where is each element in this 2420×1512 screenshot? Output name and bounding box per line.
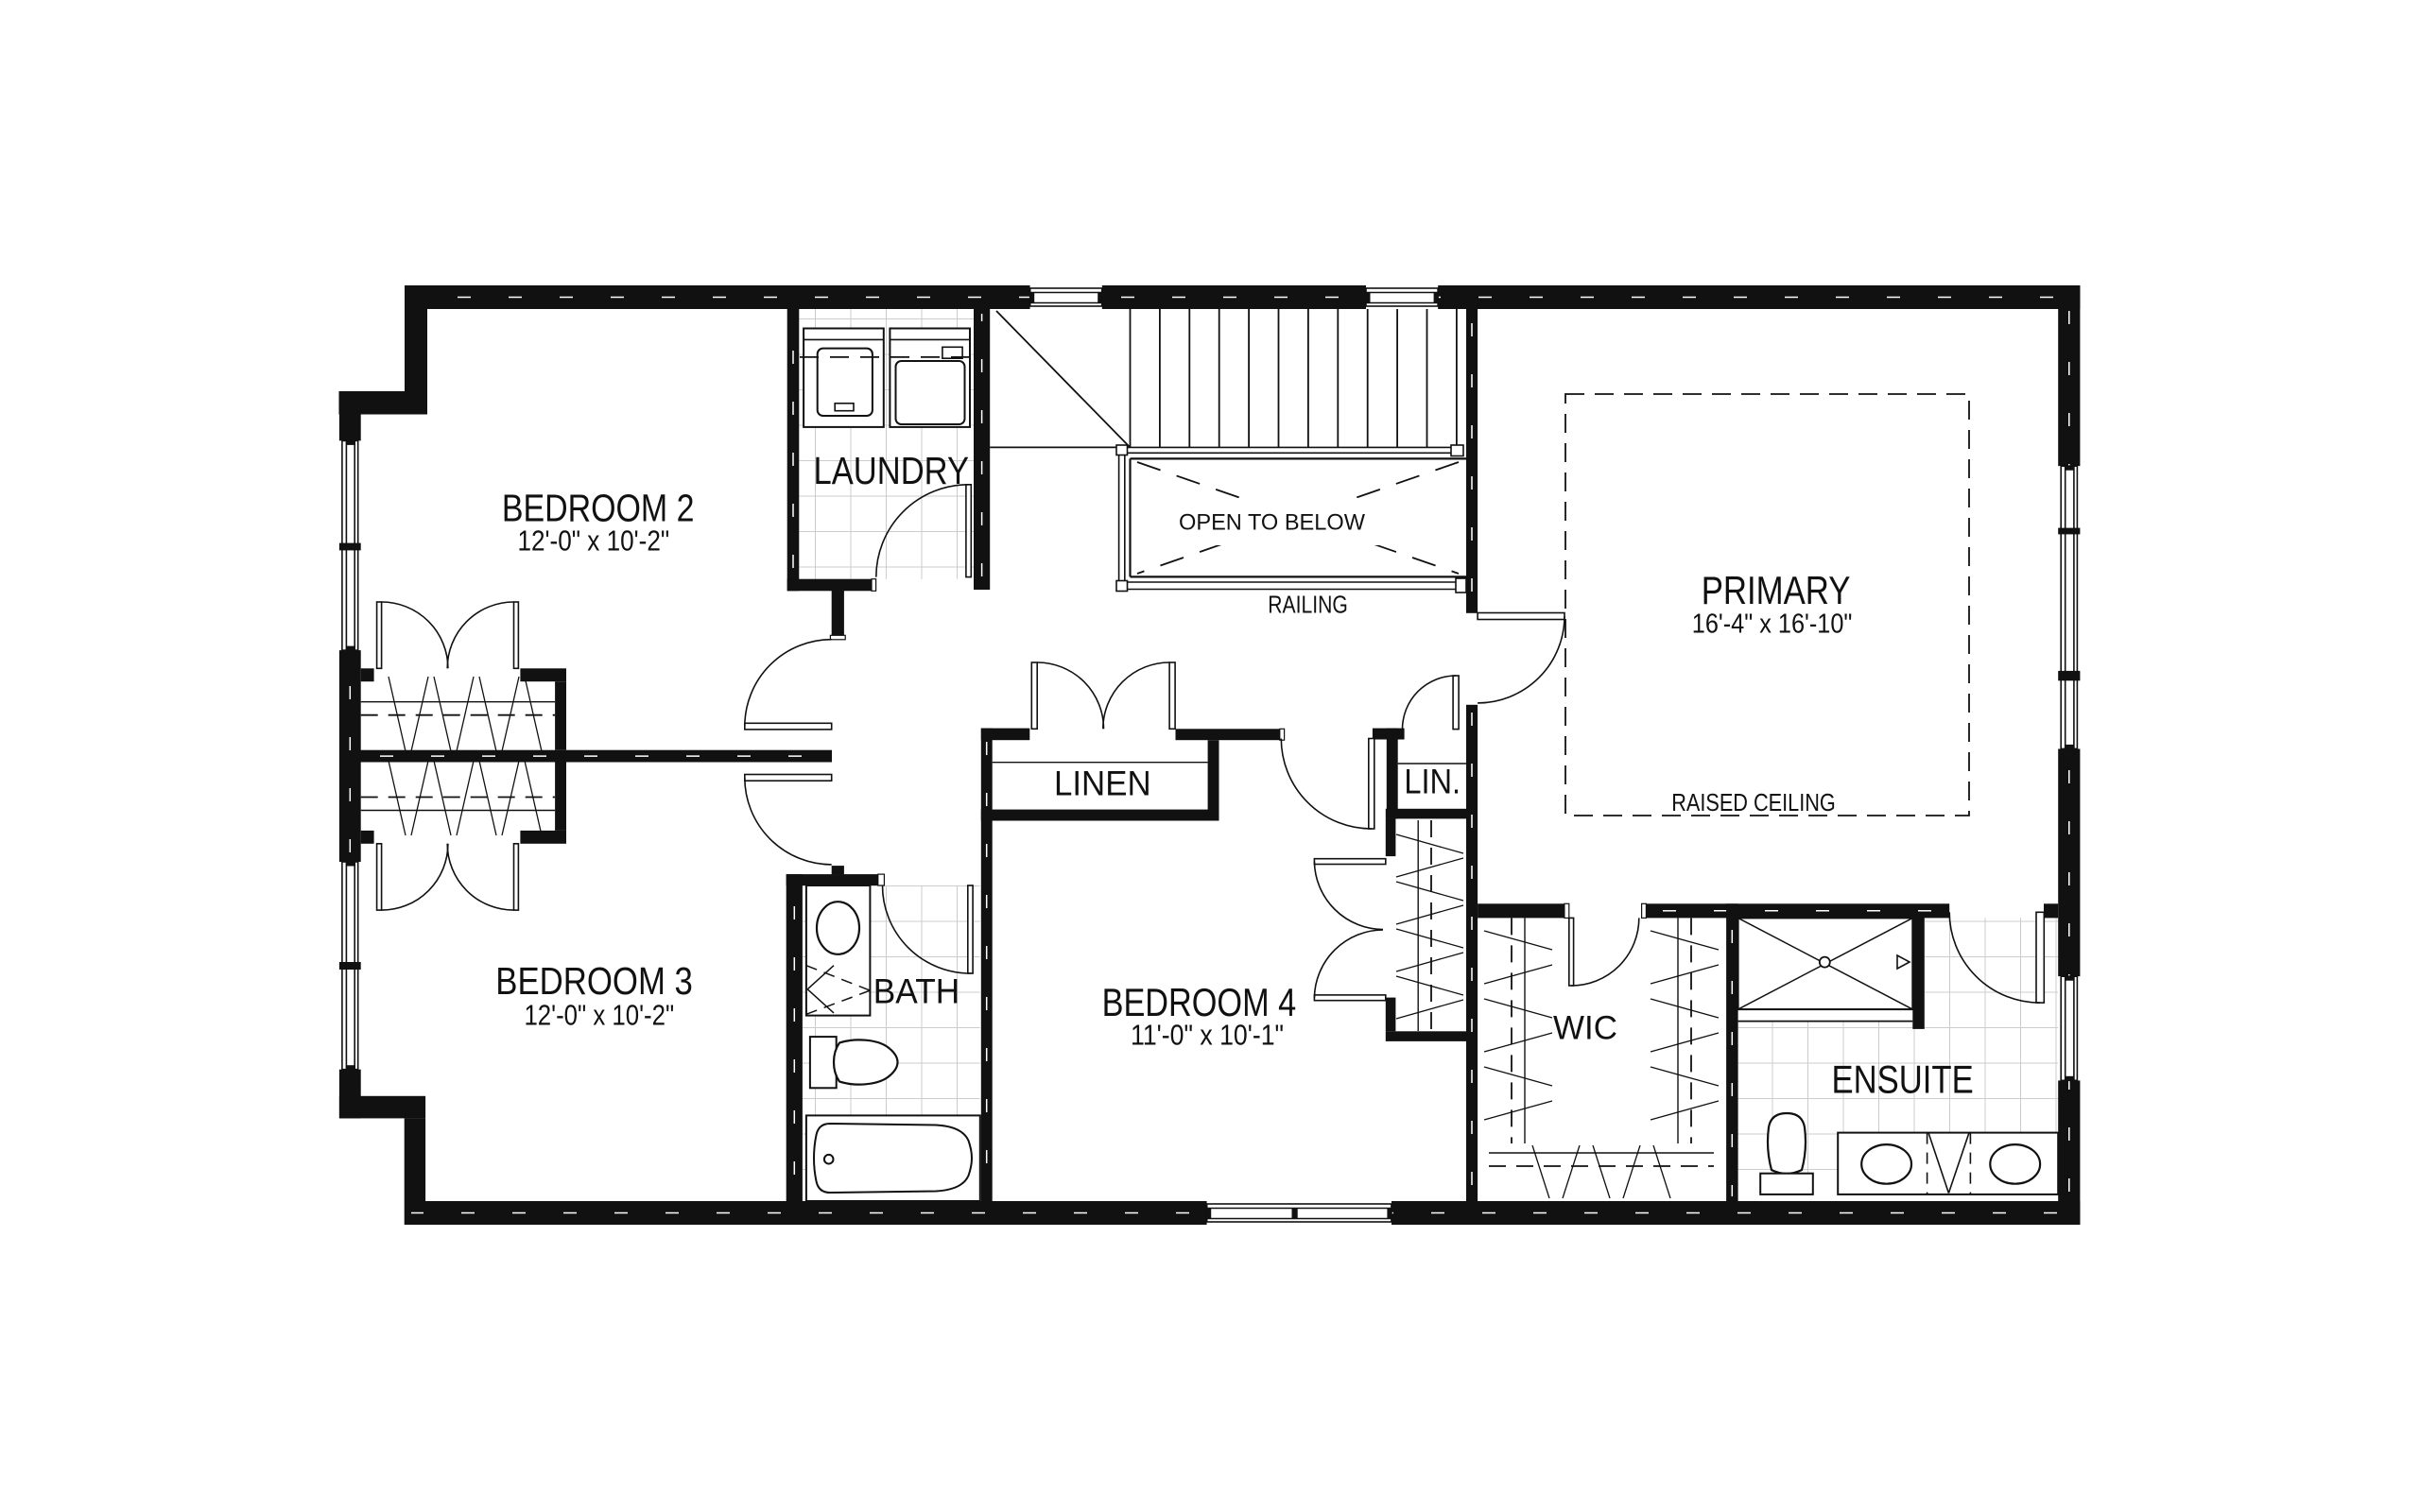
svg-text:LAUNDRY: LAUNDRY [814, 449, 970, 492]
svg-text:RAISED CEILING: RAISED CEILING [1671, 788, 1836, 816]
svg-text:12'-0" x 10'-2": 12'-0" x 10'-2" [524, 998, 674, 1031]
svg-text:ENSUITE: ENSUITE [1832, 1057, 1974, 1102]
svg-text:LIN.: LIN. [1404, 763, 1461, 801]
svg-text:BATH: BATH [873, 972, 959, 1011]
svg-text:OPEN TO BELOW: OPEN TO BELOW [1179, 509, 1365, 535]
svg-text:RAILING: RAILING [1268, 590, 1348, 618]
svg-text:16'-4" x 16'-10": 16'-4" x 16'-10" [1692, 609, 1853, 639]
svg-text:BEDROOM 3: BEDROOM 3 [495, 959, 693, 1003]
svg-text:11'-0" x 10'-1": 11'-0" x 10'-1" [1131, 1019, 1284, 1051]
svg-text:BEDROOM 4: BEDROOM 4 [1102, 980, 1297, 1024]
svg-text:WIC: WIC [1553, 1010, 1617, 1047]
svg-text:LINEN: LINEN [1054, 764, 1151, 802]
svg-text:PRIMARY: PRIMARY [1702, 568, 1851, 612]
svg-text:12'-0" x 10'-2": 12'-0" x 10'-2" [517, 524, 669, 558]
